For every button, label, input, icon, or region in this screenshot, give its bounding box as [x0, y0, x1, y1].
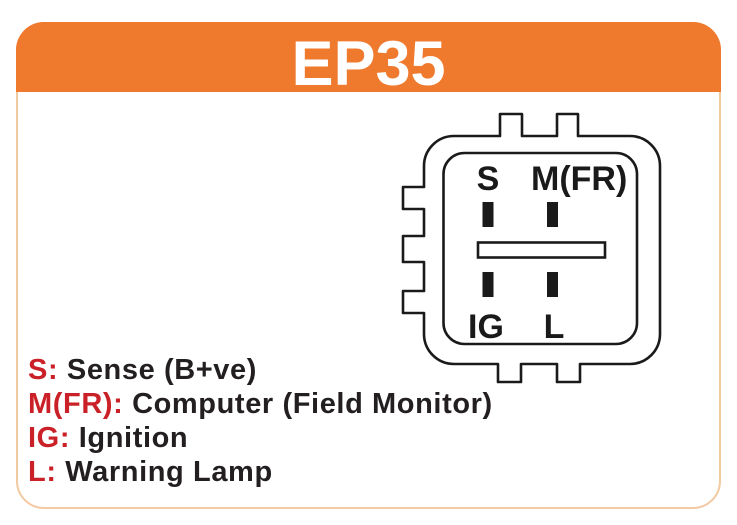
legend-row-l: L: Warning Lamp: [28, 455, 493, 489]
legend-pin-description: Computer (Field Monitor): [132, 388, 493, 420]
legend-pin-description: Ignition: [79, 422, 189, 454]
pin-label-mfr: M(FR): [531, 160, 627, 198]
legend-row-mfr: M(FR): Computer (Field Monitor): [28, 387, 493, 421]
legend-pin-label: L:: [28, 456, 57, 488]
connector-key-bar: [478, 243, 605, 258]
pin-blade-l: [547, 272, 558, 297]
pin-label-s: S: [477, 160, 500, 198]
legend-pin-label: IG:: [28, 422, 70, 454]
pin-label-l: L: [544, 308, 565, 346]
legend-row-ig: IG: Ignition: [28, 421, 493, 455]
pin-blade-mfr: [547, 202, 558, 227]
legend-pin-label: M(FR):: [28, 388, 123, 420]
pin-blade-ig: [483, 272, 494, 297]
product-code-title: EP35: [291, 33, 445, 96]
legend-pin-label: S:: [28, 354, 58, 386]
pin-blade-s: [483, 202, 494, 227]
legend-pin-description: Warning Lamp: [65, 456, 273, 488]
pin-label-ig: IG: [468, 308, 504, 346]
legend-row-s: S: Sense (B+ve): [28, 353, 493, 387]
legend-pin-description: Sense (B+ve): [67, 354, 257, 386]
product-header-bar: EP35: [16, 22, 721, 92]
pin-legend: S: Sense (B+ve) M(FR): Computer (Field M…: [28, 353, 493, 489]
